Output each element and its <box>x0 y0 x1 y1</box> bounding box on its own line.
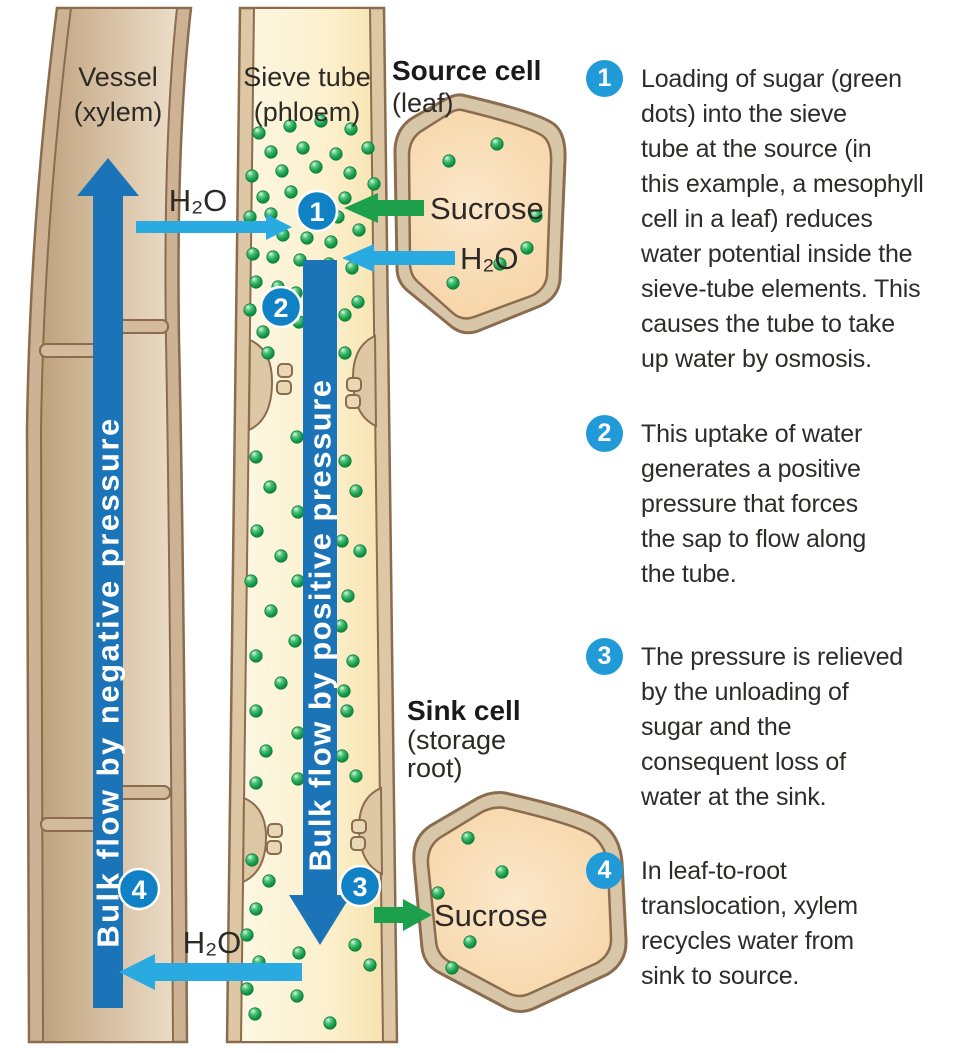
annotation-3-line: by the unloading of <box>641 675 903 710</box>
vessel-label-line1: Vessel <box>78 62 158 92</box>
step-marker-4-number: 4 <box>131 875 146 905</box>
annotation-3-line: water at the sink. <box>641 780 903 815</box>
annotation-2-line: the sap to flow along <box>641 522 866 557</box>
annotation-3-line: consequent loss of <box>641 745 903 780</box>
annotation-4-line: recycles water from <box>641 924 858 959</box>
sucrose-label-sink: Sucrose <box>434 898 548 933</box>
annotation-1-line: this example, a mesophyll <box>641 167 924 202</box>
annotation-2-line: the tube. <box>641 557 866 592</box>
sucrose-label-source: Sucrose <box>430 191 544 226</box>
annotation-item-3: 3 The pressure is relieved by the unload… <box>586 638 903 815</box>
annotation-2-line: pressure that forces <box>641 487 866 522</box>
source-cell-sublabel: (leaf) <box>392 88 454 118</box>
diagram-svg: Bulk flow by negative pressure Bulk flow… <box>0 0 640 1053</box>
h2o-label-top: H₂O <box>169 183 228 218</box>
annotation-1-line: up water by osmosis. <box>641 342 924 377</box>
source-cell-label: Source cell <box>392 55 541 86</box>
annotation-4-text: In leaf-to-root translocation, xylem rec… <box>641 852 858 994</box>
annotation-1-line: cell in a leaf) reduces <box>641 202 924 237</box>
sieve-tube-label-line2: (phloem) <box>254 97 361 127</box>
annotation-2-marker: 2 <box>586 415 623 452</box>
xylem-vessel: Bulk flow by negative pressure <box>27 8 191 1042</box>
annotation-3-line: The pressure is relieved <box>641 640 903 675</box>
annotation-1-line: sieve-tube elements. This <box>641 272 924 307</box>
step-marker-3-number: 3 <box>352 872 367 902</box>
annotation-3-marker: 3 <box>586 638 623 675</box>
annotation-item-4: 4 In leaf-to-root translocation, xylem r… <box>586 852 858 994</box>
annotation-1-text: Loading of sugar (green dots) into the s… <box>641 60 924 377</box>
annotation-4-marker: 4 <box>586 852 623 889</box>
annotation-1-line: causes the tube to take <box>641 307 924 342</box>
annotation-4-line: In leaf-to-root <box>641 854 858 889</box>
h2o-label-bottom: H₂O <box>183 925 242 960</box>
sink-cell-sublabel-line2: root) <box>407 753 463 783</box>
annotation-2-text: This uptake of water generates a positiv… <box>641 415 866 592</box>
step-marker-1: 1 <box>297 191 337 231</box>
sieve-tube-label-line1: Sieve tube <box>243 62 371 92</box>
step-marker-3: 3 <box>340 866 380 906</box>
sink-cell-sublabel-line1: (storage <box>407 725 506 755</box>
step-marker-2-number: 2 <box>273 293 288 323</box>
annotation-3-text: The pressure is relieved by the unloadin… <box>641 638 903 815</box>
xylem-bulk-flow-label: Bulk flow by negative pressure <box>91 416 126 948</box>
phloem-bulk-flow-label: Bulk flow by positive pressure <box>303 379 338 872</box>
annotation-1-marker: 1 <box>586 60 623 97</box>
annotation-4-line: translocation, xylem <box>641 889 858 924</box>
annotation-4-line: sink to source. <box>641 959 858 994</box>
annotation-2-line: generates a positive <box>641 452 866 487</box>
annotation-1-line: dots) into the sieve <box>641 97 924 132</box>
annotation-item-1: 1 Loading of sugar (green dots) into the… <box>586 60 924 377</box>
h2o-label-source: H₂O <box>460 241 519 276</box>
pressure-flow-diagram: Bulk flow by negative pressure Bulk flow… <box>0 0 955 1053</box>
annotation-1-line: water potential inside the <box>641 237 924 272</box>
step-marker-4: 4 <box>119 869 159 909</box>
step-marker-2: 2 <box>261 287 301 327</box>
step-marker-1-number: 1 <box>309 197 324 227</box>
annotation-1-line: tube at the source (in <box>641 132 924 167</box>
sink-cell-label: Sink cell <box>407 695 521 726</box>
vessel-label-line2: (xylem) <box>74 97 163 127</box>
annotation-item-2: 2 This uptake of water generates a posit… <box>586 415 866 592</box>
annotation-panel: 1 Loading of sugar (green dots) into the… <box>586 58 955 1048</box>
annotation-3-line: sugar and the <box>641 710 903 745</box>
annotation-1-line: Loading of sugar (green <box>641 62 924 97</box>
annotation-2-line: This uptake of water <box>641 417 866 452</box>
